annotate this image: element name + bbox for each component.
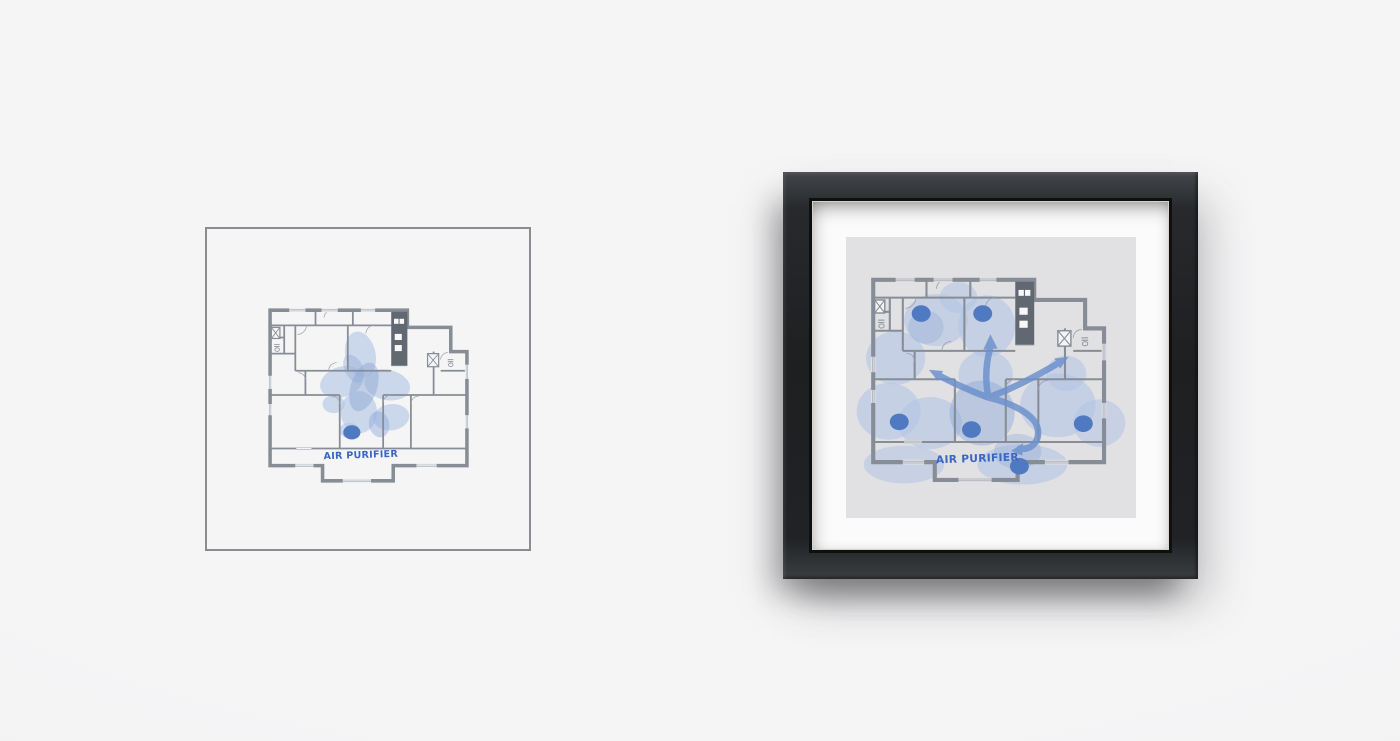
floorplan-right-svg: AIR PURIFIER: [846, 237, 1136, 518]
purifier-dot: [962, 421, 981, 438]
picture-frame: AIR PURIFIER: [783, 172, 1198, 579]
purifier-dot: [911, 305, 930, 322]
purifier-dot: [973, 305, 992, 322]
purifier-dot: [1073, 415, 1092, 432]
wall-backdrop: AIR PURIFIER: [0, 0, 1400, 741]
frame-mat: AIR PURIFIER: [812, 201, 1169, 550]
purifier-dot: [889, 414, 908, 431]
airflow-arrow-up: [986, 350, 989, 396]
air-purifier-label: AIR PURIFIER: [323, 449, 398, 463]
purifier-dot: [343, 425, 360, 439]
artwork: AIR PURIFIER: [846, 237, 1136, 518]
frame-rebate: AIR PURIFIER: [809, 198, 1172, 553]
left-print: AIR PURIFIER: [205, 227, 531, 551]
floorplan-left-svg: AIR PURIFIER: [262, 299, 474, 491]
